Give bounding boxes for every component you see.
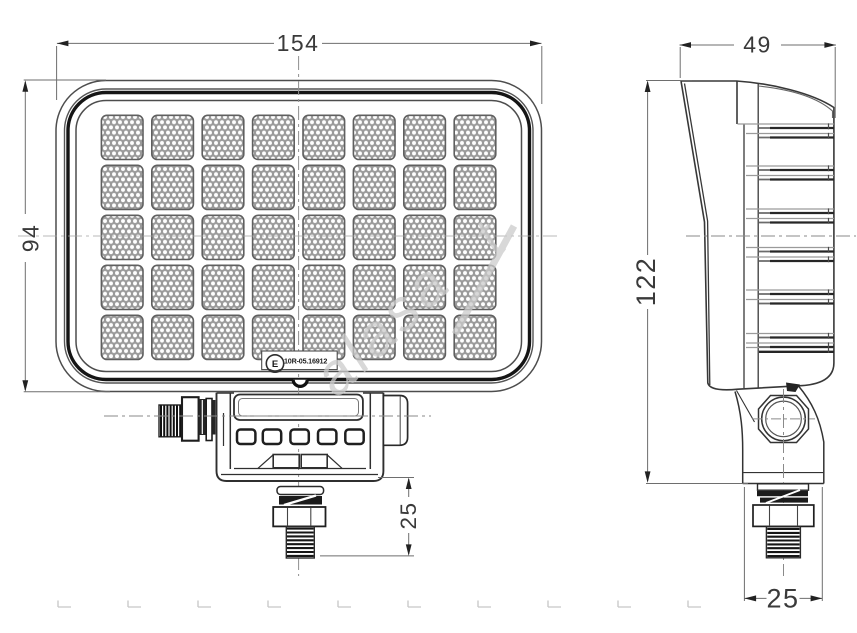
svg-text:154: 154 (277, 30, 320, 56)
svg-text:49: 49 (743, 31, 772, 57)
svg-text:E: E (272, 359, 278, 370)
svg-text:122: 122 (631, 257, 661, 307)
svg-text:25: 25 (766, 584, 799, 614)
svg-text:94: 94 (17, 224, 43, 253)
svg-text:25: 25 (396, 501, 421, 529)
